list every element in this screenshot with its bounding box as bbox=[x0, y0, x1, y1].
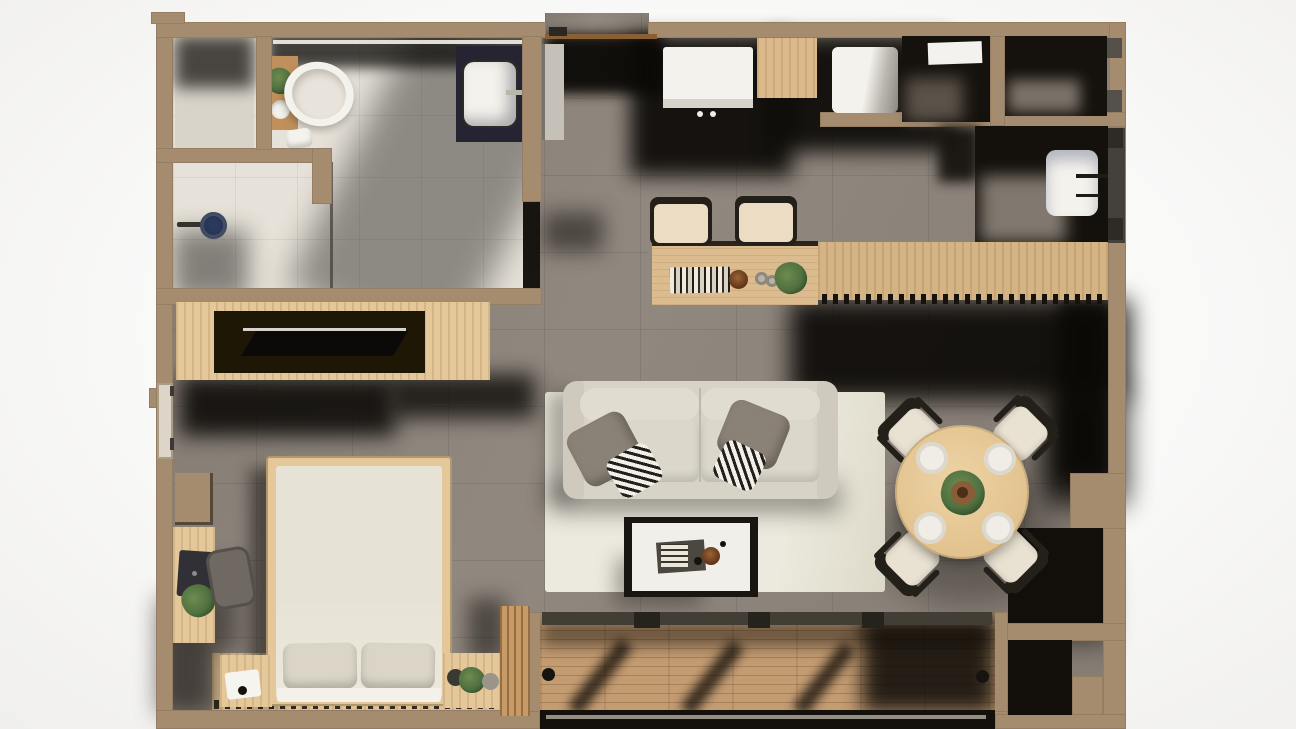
tv-screen bbox=[241, 331, 408, 356]
wall-shower-stub bbox=[312, 148, 332, 204]
balcony-outer-rail-strip bbox=[540, 710, 995, 729]
washbasin-faucet bbox=[506, 90, 522, 95]
wall-closet-divider bbox=[990, 36, 1005, 126]
bar-stool-1-seat bbox=[654, 204, 708, 243]
wall-top-left bbox=[156, 22, 546, 38]
sofa-armrest-right bbox=[817, 381, 838, 499]
slat-partition bbox=[500, 606, 530, 716]
cooktop-knob-1 bbox=[697, 111, 703, 117]
guest-bath-faucet-a bbox=[1076, 174, 1108, 178]
wall-left-nub bbox=[149, 388, 157, 408]
tv-unit-shadow-b bbox=[390, 374, 535, 418]
nightstand-knob bbox=[238, 686, 247, 695]
wall-left bbox=[156, 22, 173, 729]
closet-shadow bbox=[175, 36, 254, 88]
wardrobe-1-paper bbox=[928, 41, 983, 65]
island-counter-right bbox=[818, 242, 1108, 300]
niche-step bbox=[1072, 676, 1103, 715]
niche-wall-1 bbox=[1070, 473, 1126, 530]
cooktop-control-strip bbox=[663, 99, 753, 108]
wall-top-nub bbox=[151, 12, 185, 24]
tall-cabinet bbox=[542, 44, 564, 140]
storage-niche-2 bbox=[1008, 640, 1072, 715]
niche-wall-5 bbox=[1103, 640, 1126, 715]
tv-screen-edge bbox=[243, 328, 406, 331]
tv-unit-shadow-a bbox=[180, 376, 395, 436]
niche-wall-2 bbox=[1103, 528, 1126, 625]
guest-bath-shadow-ext bbox=[938, 126, 980, 182]
counter-shadow-c bbox=[1058, 300, 1110, 478]
nightstand-cloth bbox=[224, 669, 261, 700]
window-tick-top bbox=[170, 386, 174, 396]
bar-stool-2 bbox=[735, 196, 797, 245]
coffee-table-dot-1 bbox=[694, 557, 702, 565]
door-handle-right bbox=[976, 670, 989, 683]
coffee-table-dot-2 bbox=[720, 541, 726, 547]
balcony-right-shadow bbox=[862, 618, 995, 712]
window-tick-bottom bbox=[170, 438, 174, 450]
bar-stool-1 bbox=[650, 197, 712, 246]
sofa-seam bbox=[699, 388, 701, 482]
door-post-3 bbox=[862, 612, 884, 628]
cooktop-knob-2 bbox=[710, 111, 716, 117]
wall-closet-south bbox=[156, 148, 332, 163]
toilet bbox=[285, 127, 313, 149]
kitchen-sink bbox=[832, 47, 898, 113]
wall-bottom-left bbox=[156, 710, 540, 729]
rain-shower-head bbox=[200, 212, 227, 239]
wardrobe-2-contents bbox=[1008, 80, 1080, 112]
laptop-logo bbox=[192, 571, 197, 576]
wall-bathroom-east bbox=[522, 36, 542, 202]
guest-bath-door-block-b bbox=[1108, 218, 1123, 240]
coffee-table-book bbox=[661, 544, 688, 567]
bathtub-basin bbox=[286, 63, 352, 126]
cooktop bbox=[663, 47, 753, 107]
guest-bath-sink bbox=[1046, 150, 1098, 216]
plate-2 bbox=[984, 443, 1016, 475]
bar-stool-2-seat bbox=[739, 203, 793, 242]
coffee-table-bowl bbox=[702, 547, 720, 565]
entry-door-pivot bbox=[549, 27, 567, 36]
guest-bath-faucet-b bbox=[1076, 194, 1100, 197]
dining-plant-core bbox=[957, 487, 968, 498]
counter-books bbox=[670, 266, 730, 293]
wardrobe-1-contents bbox=[905, 78, 963, 122]
door-post-1 bbox=[634, 612, 660, 628]
wardrobe-2-jamb-b bbox=[1107, 90, 1122, 112]
bed-pillow-1 bbox=[283, 642, 358, 689]
stool-shadow bbox=[543, 212, 603, 252]
coffee-table bbox=[624, 517, 758, 597]
bedroom-column bbox=[175, 473, 213, 525]
plate-3 bbox=[914, 512, 946, 544]
bed-foot-bench bbox=[277, 688, 441, 702]
counter-bowl bbox=[729, 270, 748, 289]
bed-pillow-2 bbox=[361, 642, 436, 689]
wall-closet-east bbox=[256, 36, 272, 150]
sofa-back-cushion-1 bbox=[580, 388, 699, 421]
island-slat-edge bbox=[822, 294, 1108, 304]
balcony-rail-line bbox=[546, 715, 986, 719]
nightstand-right-vase bbox=[482, 673, 499, 690]
bathroom-region bbox=[173, 30, 540, 302]
guest-bath-door-block-a bbox=[1108, 128, 1123, 148]
niche-wall-3 bbox=[992, 623, 1126, 641]
plate-1 bbox=[916, 442, 948, 474]
towel-rail bbox=[273, 40, 523, 44]
balcony-region bbox=[540, 612, 995, 712]
bathroom-door-opening bbox=[523, 196, 540, 296]
floor-plan-render bbox=[0, 0, 1296, 729]
wardrobe-2-jamb-a bbox=[1107, 38, 1122, 58]
kitchen-wood-cabinet bbox=[757, 38, 817, 98]
door-post-2 bbox=[748, 612, 770, 628]
plate-4 bbox=[982, 512, 1014, 544]
door-handle-left bbox=[542, 668, 555, 681]
